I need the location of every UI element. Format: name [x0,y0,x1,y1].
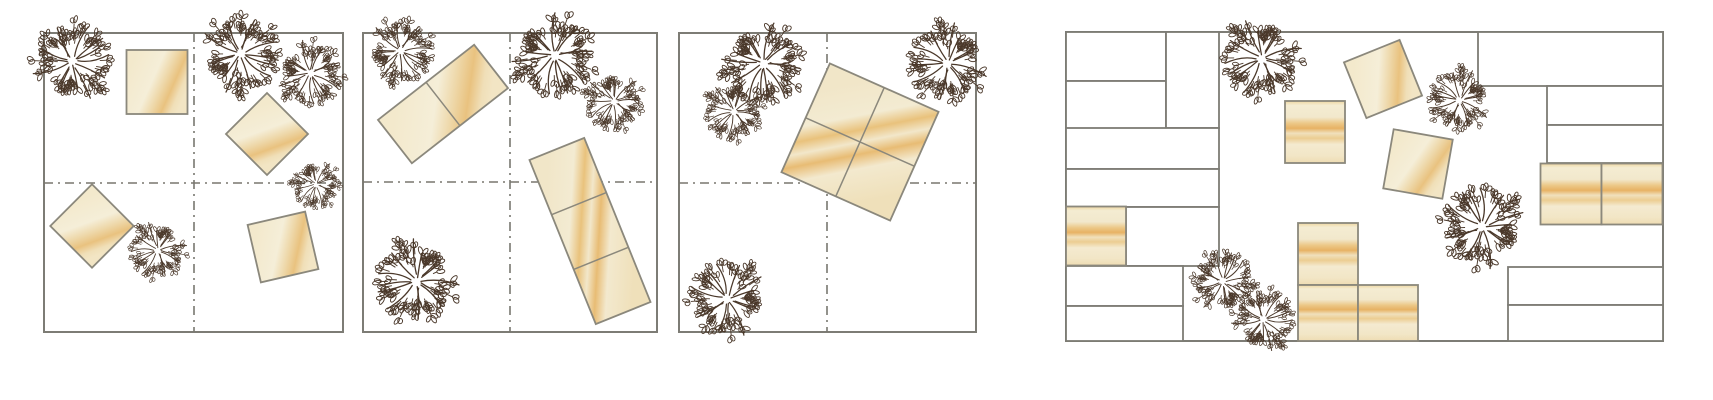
building-block [1298,285,1358,341]
plot-cell [1547,125,1663,163]
plot-cell [1066,32,1166,81]
building-block [1066,207,1126,266]
plot-cell [1066,306,1183,341]
scheme-panel-3 [677,4,1006,349]
plot-cell [1478,32,1663,86]
building-block-face [1383,129,1453,199]
plot-cell [1547,86,1663,125]
plot-cell [1508,305,1663,341]
building-block [1358,285,1418,341]
building-block-face [127,50,188,114]
building-block-face [248,212,319,283]
scheme-panel-2 [356,0,659,344]
building-block [1541,164,1602,225]
building-block [1602,164,1663,225]
building-block-face [1602,164,1663,225]
building-block-face [1298,285,1358,341]
building-block-face [1541,164,1602,225]
building-block-face [1285,101,1345,163]
building-block [127,50,188,114]
building-block-face [1298,223,1358,285]
plot-cell [1166,32,1219,128]
plot-cell [1066,169,1219,207]
plot-cell [1508,267,1663,305]
building-block-face [1066,207,1126,266]
building-block-face [1358,285,1418,341]
site-plan-panel [1066,20,1663,355]
scheme-panel-1 [26,0,355,332]
plot-cell [1066,128,1219,169]
plot-cell [1066,266,1183,306]
building-block [1298,223,1358,285]
diagram-stage [0,0,1713,400]
building-block [1285,101,1345,163]
building-block [1383,129,1453,199]
building-block [248,212,319,283]
site-diagrams-canvas [0,0,1713,400]
plot-cell [1066,81,1166,129]
